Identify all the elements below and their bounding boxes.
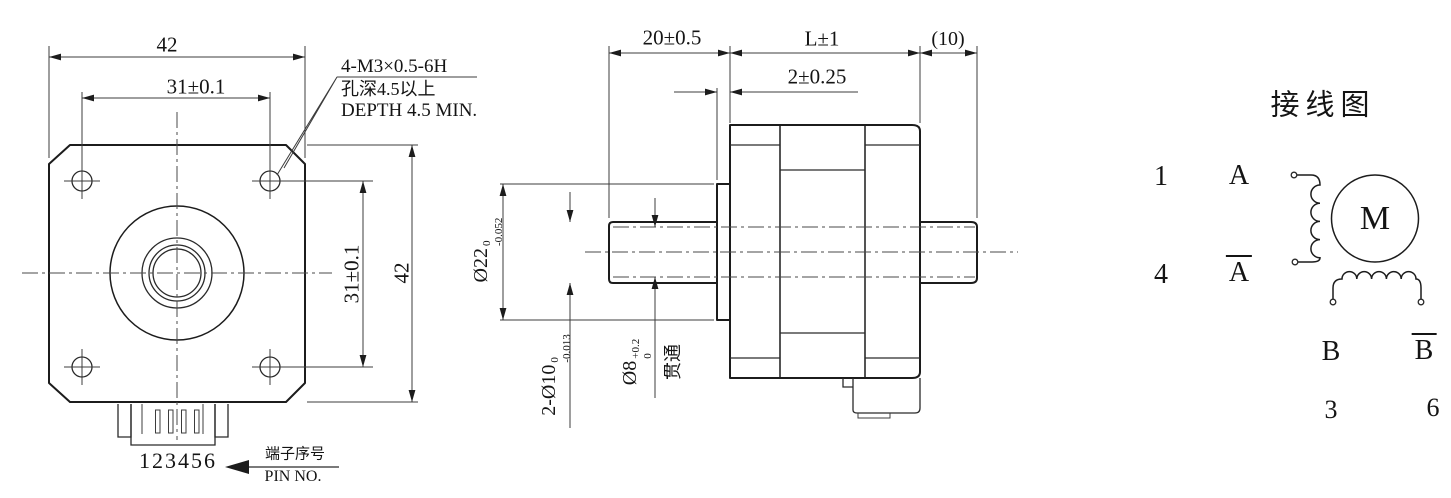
dim-rear-shaft-length xyxy=(920,46,977,218)
tapped-hole-callout-line1: 4-M3×0.5-6H xyxy=(341,57,447,76)
bore-tol-upper: +0.2 xyxy=(630,339,642,359)
dim-boss-thickness-label: 2±0.25 xyxy=(788,67,847,88)
bore-tol-lower: 0 xyxy=(642,353,654,359)
pilot-diameter-value: Ø22 xyxy=(470,248,492,282)
dim-bore-diameter-label: Ø8+0.20 xyxy=(620,339,654,385)
dim-front-shaft-length xyxy=(609,46,730,218)
wiring-pin-1-label: 1 xyxy=(1154,163,1168,191)
technical-drawing-canvas: 42 31±0.1 4-M3×0.5-6H 孔深4.5以上 DEPTH 4.5 … xyxy=(0,0,1451,498)
wiring-phase-a-bar-label: A xyxy=(1226,255,1252,287)
phase-b-coil xyxy=(1333,272,1421,299)
pilot-tol-upper: 0 xyxy=(481,240,493,246)
phase-a-bar-letter: A xyxy=(1229,257,1249,288)
phase-a-coil xyxy=(1297,175,1320,262)
bore-through-note: 贯通 xyxy=(664,344,682,380)
wiring-pin-3-label: 3 xyxy=(1325,397,1338,423)
side-view-linework xyxy=(500,46,1018,428)
dim-rear-shaft-label: (10) xyxy=(931,29,964,49)
dim-height-label: 42 xyxy=(392,263,413,284)
motor-symbol-letter: M xyxy=(1360,202,1390,236)
pin-numbers-label: 123456 xyxy=(139,450,217,472)
wiring-phase-b-label: B xyxy=(1322,338,1341,366)
dim-front-shaft-label: 20±0.5 xyxy=(643,28,702,49)
dim-shaft-diameter-label: 2-Ø100-0.013 xyxy=(539,334,573,416)
shaft-tol-upper: 0 xyxy=(549,357,561,363)
tapped-hole-callout-line2: 孔深4.5以上 xyxy=(341,80,436,98)
terminal-3-node xyxy=(1330,299,1336,305)
terminal-6-node xyxy=(1418,299,1424,305)
dim-pilot-diameter-label: Ø220-0.052 xyxy=(471,218,505,283)
hole-centerlines xyxy=(64,163,288,385)
wiring-pin-4-label: 4 xyxy=(1154,261,1168,289)
wiring-diagram-linework xyxy=(1291,172,1424,305)
tapped-hole-callout-line3: DEPTH 4.5 MIN. xyxy=(341,101,477,120)
front-connector xyxy=(118,404,228,445)
phase-b-bar-letter: B xyxy=(1415,335,1434,366)
dim-boss-thickness xyxy=(674,88,858,180)
wiring-phase-b-bar-label: B xyxy=(1412,333,1437,365)
dim-hole-spacing-v-label: 31±0.1 xyxy=(342,245,363,304)
terminal-1-node xyxy=(1291,172,1297,178)
terminal-4-node xyxy=(1292,259,1298,265)
dim-body-length-label: L±1 xyxy=(805,29,840,50)
dim-hole-spacing-h xyxy=(82,92,270,168)
wiring-phase-a-label: A xyxy=(1229,162,1249,190)
wiring-diagram-title: 接线图 xyxy=(1270,92,1375,121)
bore-diameter-value: Ø8 xyxy=(619,361,641,385)
side-connector xyxy=(843,378,920,418)
shaft-tol-lower: -0.013 xyxy=(561,334,573,362)
pilot-tol-lower: -0.052 xyxy=(493,218,505,246)
shaft-diameter-value: 2-Ø10 xyxy=(538,365,560,416)
pin-label-en: PIN NO. xyxy=(265,469,322,485)
wiring-pin-6-label: 6 xyxy=(1427,395,1440,421)
dim-width-label: 42 xyxy=(157,35,178,56)
dim-hole-spacing-h-label: 31±0.1 xyxy=(167,77,226,98)
pin-label-cn: 端子序号 xyxy=(265,448,325,463)
